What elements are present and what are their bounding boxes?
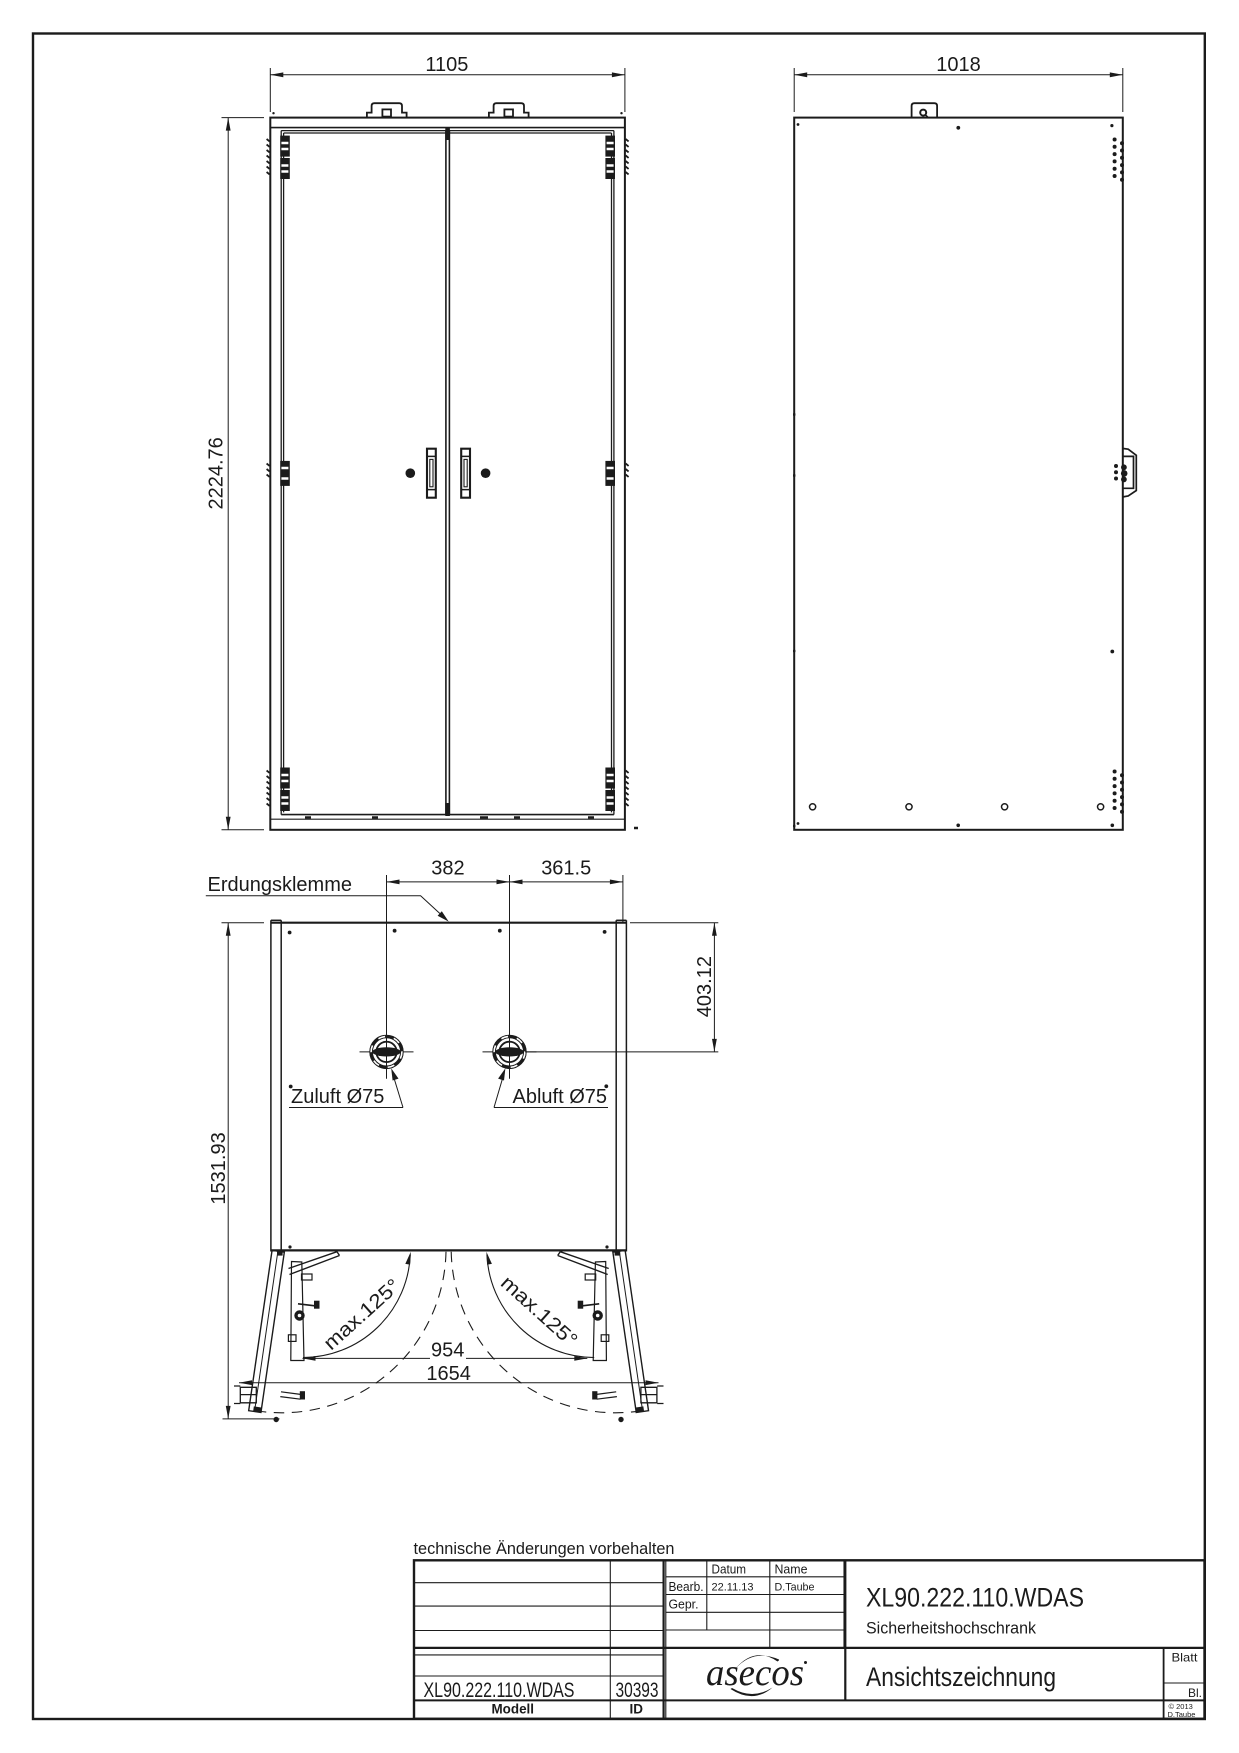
svg-text:Abluft Ø75: Abluft Ø75 [513,1086,608,1108]
svg-text:D.Taube: D.Taube [775,1581,815,1593]
svg-text:1654: 1654 [426,1363,471,1385]
svg-text:403.12: 403.12 [694,956,716,1017]
svg-text:1018: 1018 [936,54,981,76]
svg-text:asecos: asecos [706,1652,804,1694]
svg-text:XL90.222.110.WDAS: XL90.222.110.WDAS [866,1583,1084,1613]
svg-text:382: 382 [431,858,464,880]
svg-text:954: 954 [431,1340,464,1362]
svg-text:1531.93: 1531.93 [208,1132,230,1204]
svg-text:Name: Name [775,1562,808,1577]
svg-text:Ansichtszeichnung: Ansichtszeichnung [866,1662,1056,1692]
svg-text:XL90.222.110.WDAS: XL90.222.110.WDAS [424,1679,575,1702]
svg-text:361.5: 361.5 [541,858,591,880]
svg-text:Datum: Datum [712,1562,747,1577]
svg-text:22.11.13: 22.11.13 [712,1581,754,1593]
svg-text:2224.76: 2224.76 [206,437,228,509]
svg-text:Zuluft Ø75: Zuluft Ø75 [291,1086,384,1108]
svg-text:Blatt: Blatt [1172,1651,1199,1665]
svg-text:ID: ID [630,1702,644,1717]
svg-text:Bl.: Bl. [1188,1686,1202,1700]
svg-text:Bearb.: Bearb. [669,1579,704,1594]
svg-text:30393: 30393 [616,1679,659,1702]
svg-text:Modell: Modell [492,1702,535,1717]
svg-text:Erdungsklemme: Erdungsklemme [208,874,353,896]
svg-text:technische Änderungen vorbehal: technische Änderungen vorbehalten [414,1540,675,1558]
svg-text:Sicherheitshochschrank: Sicherheitshochschrank [866,1620,1037,1638]
svg-text:1105: 1105 [425,54,468,76]
svg-text:Gepr.: Gepr. [669,1596,699,1611]
svg-text:D.Taube: D.Taube [1168,1710,1196,1719]
